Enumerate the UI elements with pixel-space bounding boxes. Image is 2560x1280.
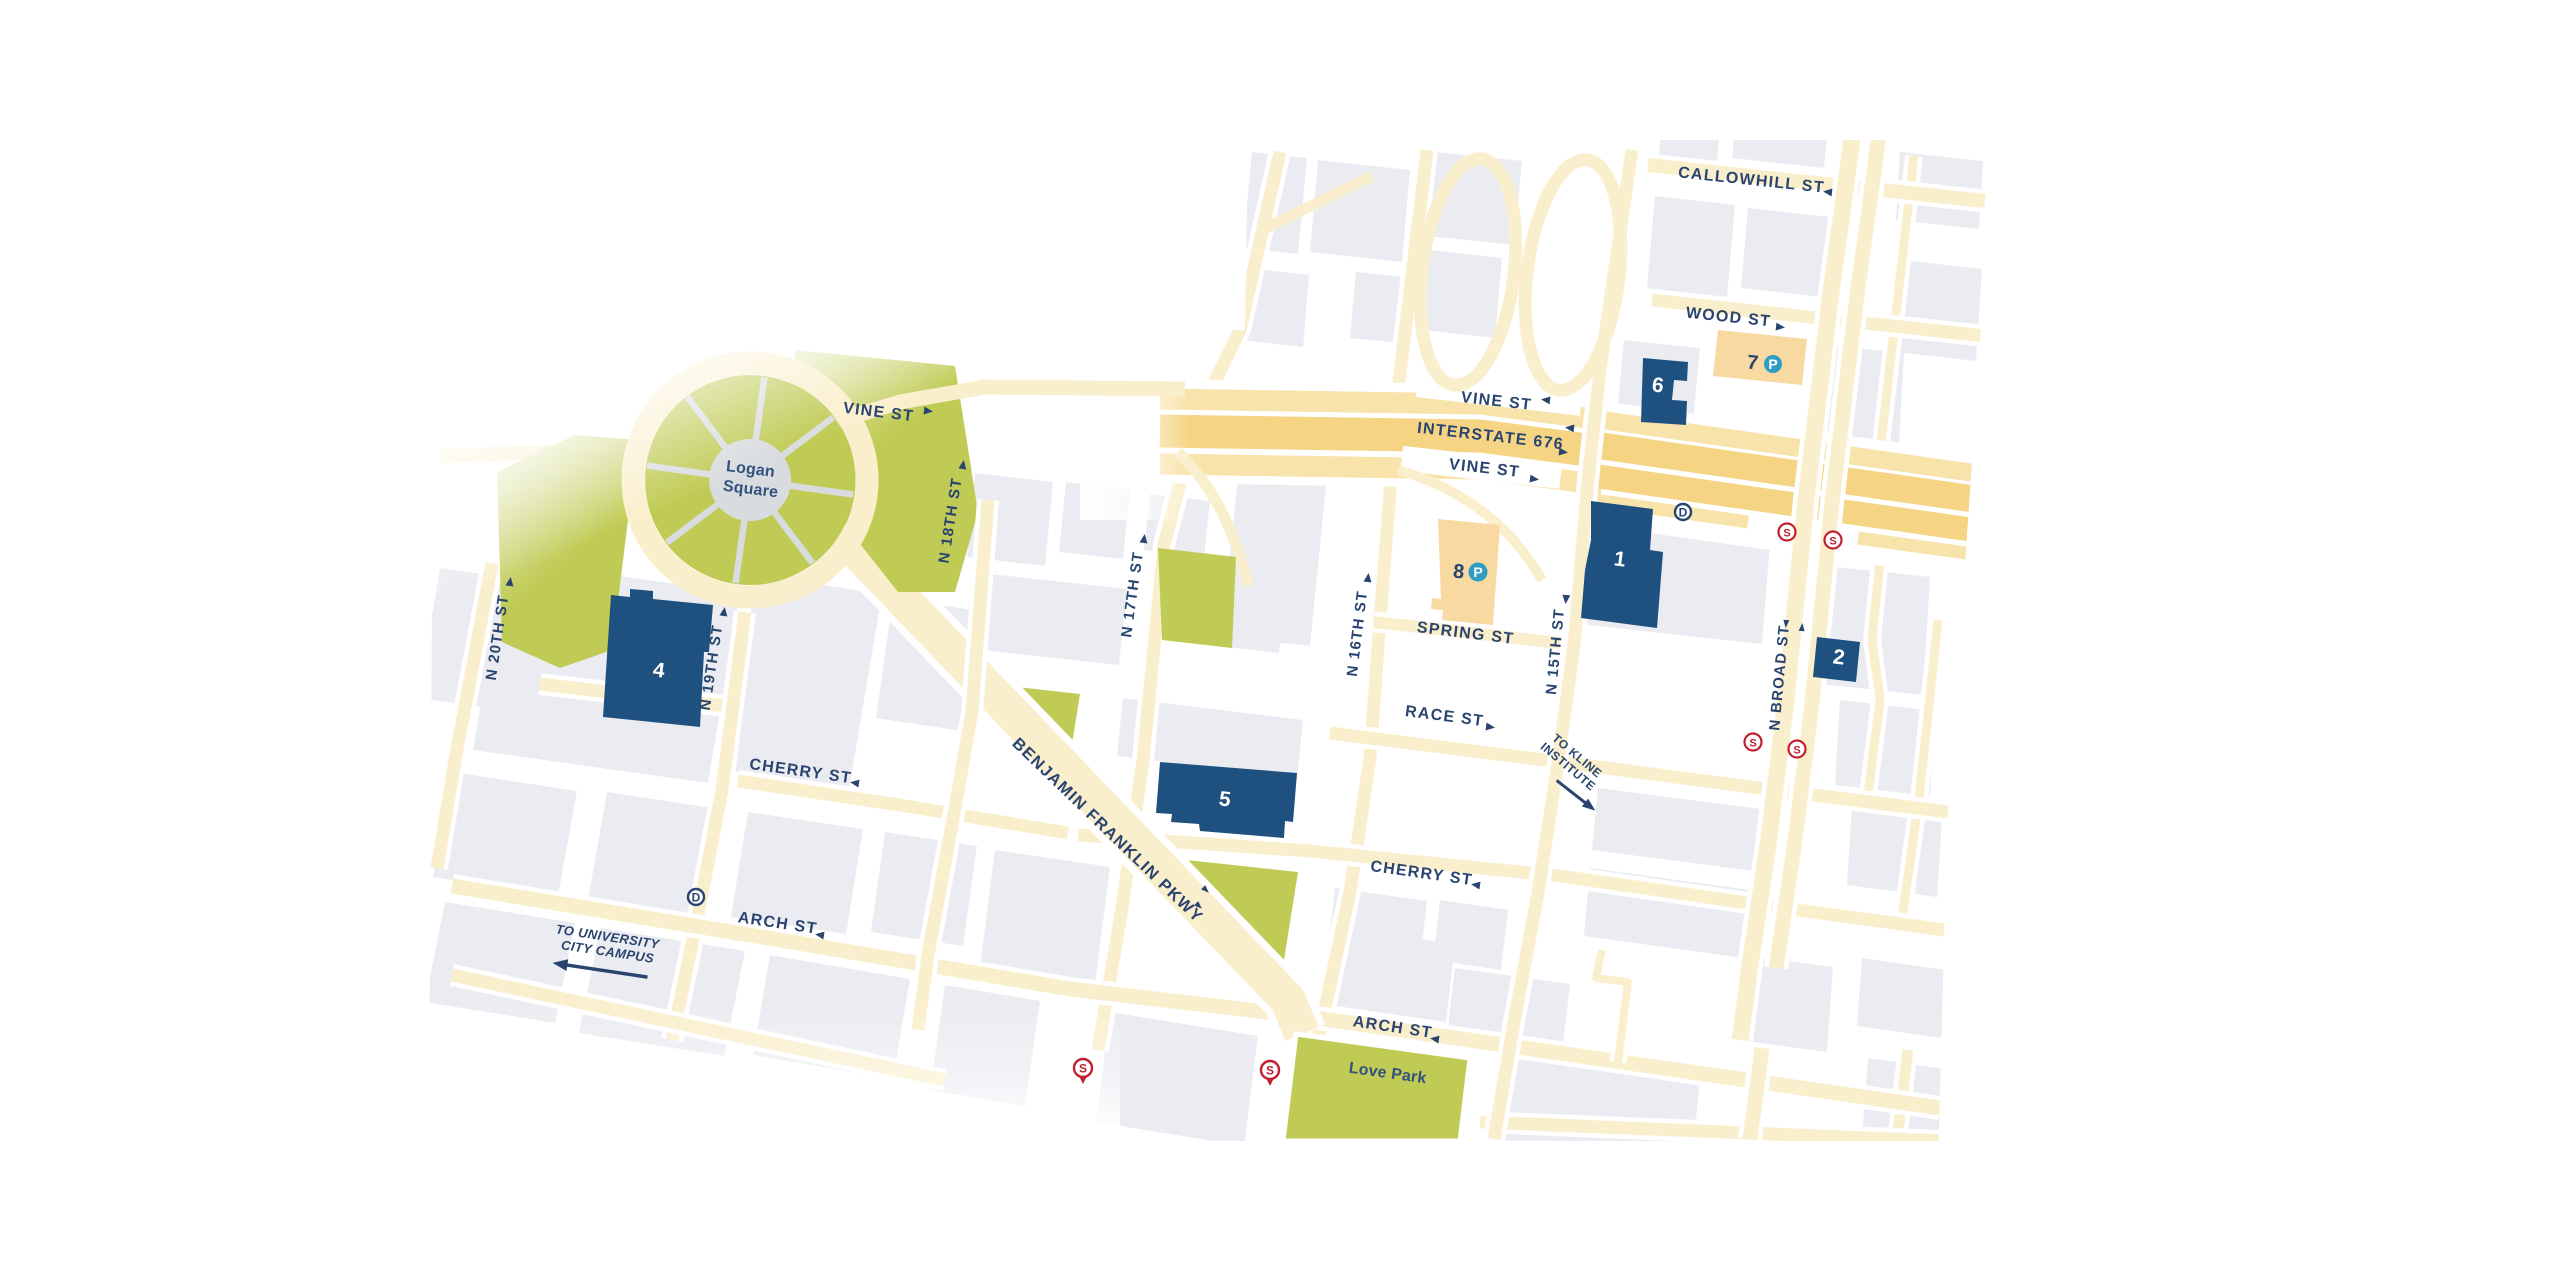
svg-text:D: D (692, 890, 701, 904)
svg-text:P: P (1473, 564, 1482, 580)
svg-text:S: S (1793, 744, 1800, 756)
svg-text:7: 7 (1746, 352, 1759, 375)
svg-text:S: S (1749, 737, 1756, 749)
svg-text:D: D (1679, 505, 1688, 519)
svg-text:P: P (1768, 356, 1777, 372)
svg-text:S: S (1829, 535, 1836, 547)
svg-text:S: S (1266, 1064, 1274, 1078)
svg-text:S: S (1783, 527, 1790, 539)
svg-text:S: S (1079, 1062, 1087, 1076)
svg-text:8: 8 (1452, 561, 1465, 584)
